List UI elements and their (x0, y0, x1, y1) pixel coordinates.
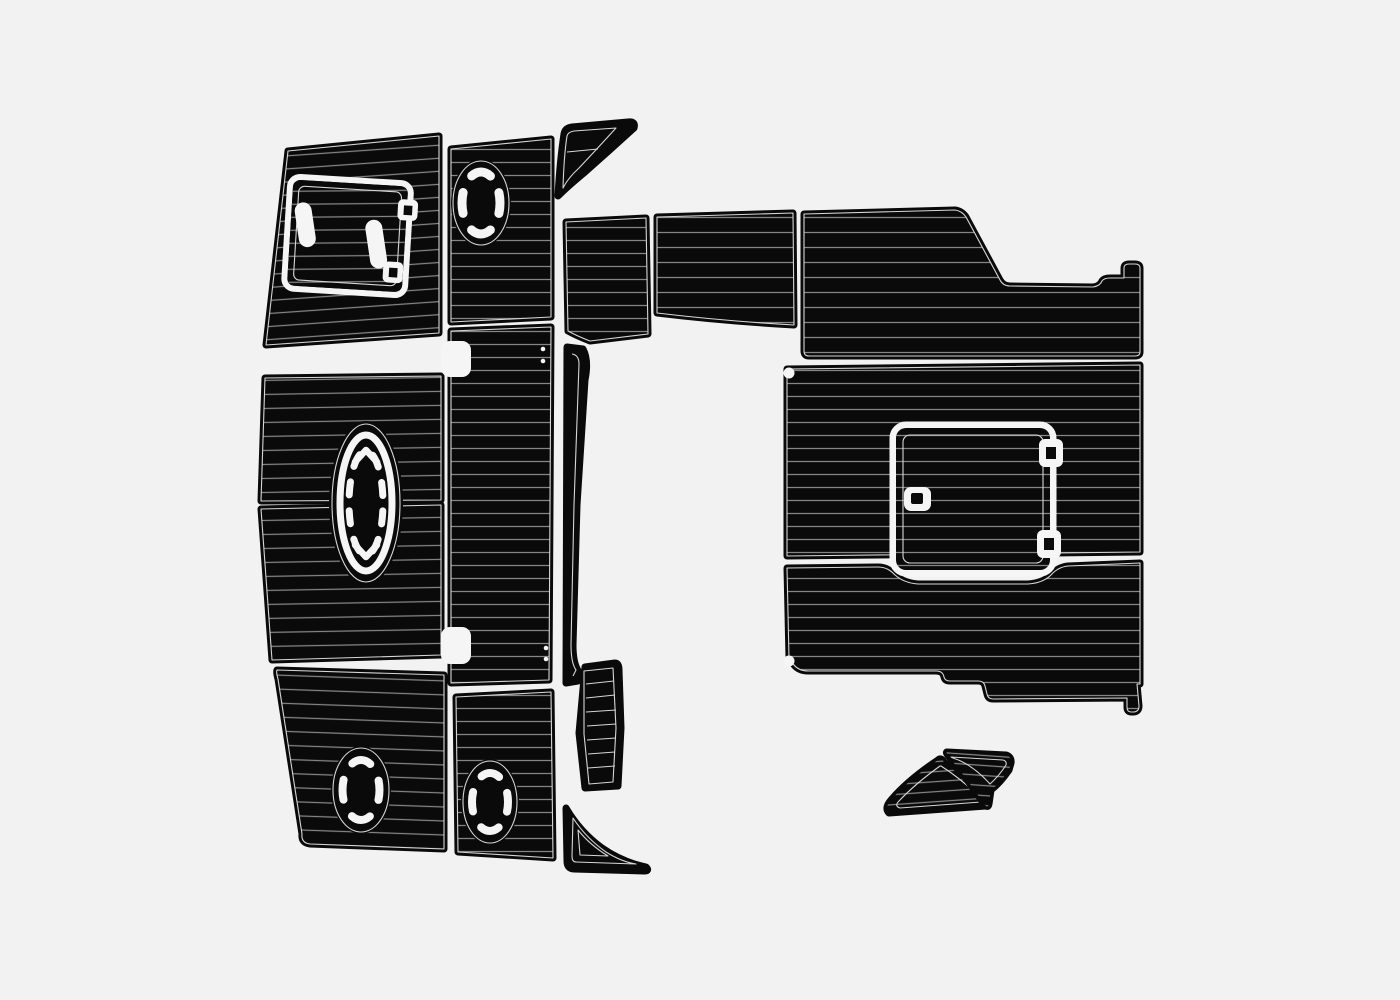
pad-swim-platform-lower (780, 556, 1146, 718)
trim-gunwale-sliver (566, 347, 587, 683)
hinge-tab (1037, 530, 1061, 558)
engine-hatch-door (888, 420, 1063, 580)
oval-hatch-forward-step (451, 159, 511, 247)
hinge-tab (397, 199, 418, 221)
oval-hatch-cockpit-center (461, 759, 519, 845)
trim-stern-wedge (566, 808, 648, 871)
hinge-tab (382, 261, 403, 283)
trim-bow-wing (558, 122, 634, 196)
oval-insert-foredeck (329, 421, 403, 585)
oval-hatch-cockpit-port (331, 746, 391, 834)
product-illustration (0, 0, 1400, 1000)
pad-transom-box-small (650, 206, 800, 332)
latch-handle (904, 487, 931, 511)
anchor-locker-hatch (274, 168, 427, 307)
pad-side-step (558, 210, 656, 348)
hinge-tab (1039, 439, 1063, 467)
pad-ladder-step (579, 663, 621, 788)
pad-transom-box-wide (798, 204, 1146, 362)
decking-pad-diagram (0, 0, 1400, 1000)
